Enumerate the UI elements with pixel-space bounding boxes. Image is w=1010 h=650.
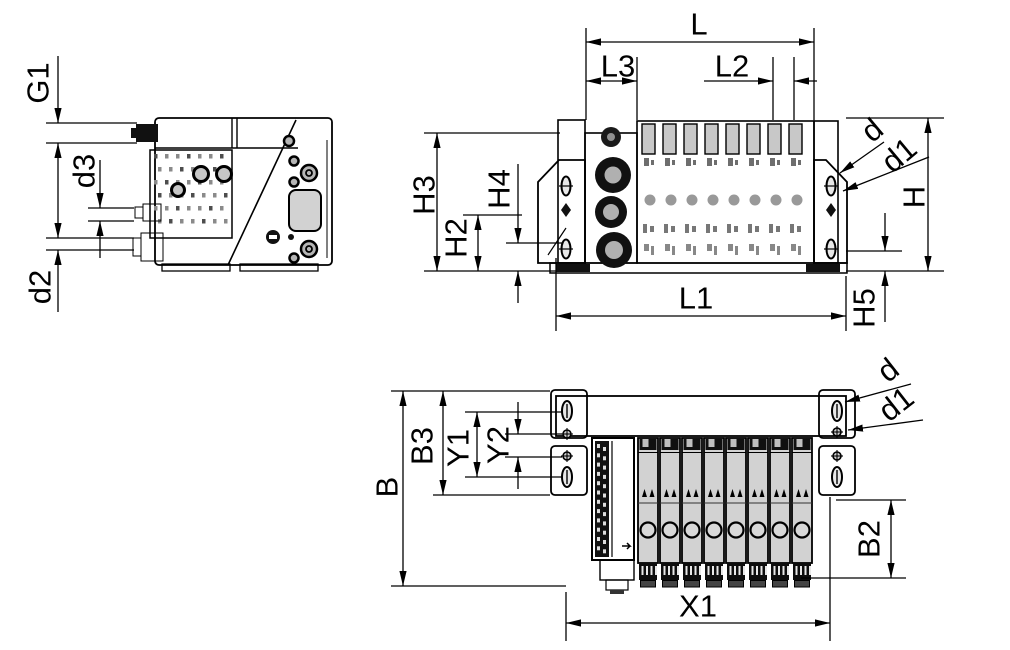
valve-slice <box>748 438 768 587</box>
front-right-bracket <box>814 160 847 263</box>
dim-label-B: B <box>372 477 403 498</box>
bracket-diamond-mark <box>826 203 836 217</box>
dim-label-X1: X1 <box>679 591 717 622</box>
valve-slice <box>792 438 812 587</box>
valve-slice <box>682 438 702 587</box>
dim-label-Y1: Y1 <box>443 429 474 467</box>
valve-slice <box>704 438 724 587</box>
dim-label-H3: H3 <box>409 175 440 215</box>
valve-slice <box>660 438 680 587</box>
supply-ports-section <box>585 127 637 268</box>
dim-d1-top-leader <box>848 420 923 430</box>
side-view <box>131 118 332 271</box>
technical-drawing-canvas: G1 d3 d2 L L3 L2 H3 H4 H2 L1 d d1 H H5 B… <box>0 0 1010 650</box>
dim-label-H2: H2 <box>441 218 472 258</box>
bracket-diamond-mark <box>561 203 571 217</box>
valve-block-front <box>637 121 814 263</box>
dim-label-Y2: Y2 <box>483 426 514 464</box>
tube-fitting-lower <box>133 233 163 261</box>
dim-label-d3: d3 <box>69 154 100 188</box>
dim-label-B3: B3 <box>407 427 438 465</box>
module-connector <box>600 560 634 580</box>
valve-slice <box>638 438 658 587</box>
top-view <box>551 390 855 594</box>
dim-label-H4: H4 <box>484 169 515 209</box>
dim-label-L1: L1 <box>679 283 713 314</box>
dim-label-B2: B2 <box>854 520 885 558</box>
end-cap-details <box>266 136 321 263</box>
valve-slice <box>726 438 746 587</box>
electrical-connector <box>131 124 158 142</box>
dim-label-L2: L2 <box>715 51 749 82</box>
dim-d2 <box>46 200 134 312</box>
dim-label-L: L <box>690 9 707 40</box>
manifold-rail <box>556 396 846 436</box>
dim-B <box>391 391 566 586</box>
valve-slice <box>770 438 790 587</box>
dim-label-L3: L3 <box>601 51 635 82</box>
dim-label-H5: H5 <box>849 288 880 328</box>
module-arrow-mark <box>622 543 630 549</box>
dim-label-d2: d2 <box>25 270 56 304</box>
dim-label-H: H <box>899 186 930 208</box>
dim-label-G1: G1 <box>23 62 54 103</box>
valve-slices <box>638 438 812 587</box>
front-left-bracket <box>538 160 585 263</box>
top-right-bracket <box>819 390 855 495</box>
front-view <box>538 120 847 273</box>
electronics-module <box>592 438 634 594</box>
side-valve-stack <box>150 150 232 238</box>
